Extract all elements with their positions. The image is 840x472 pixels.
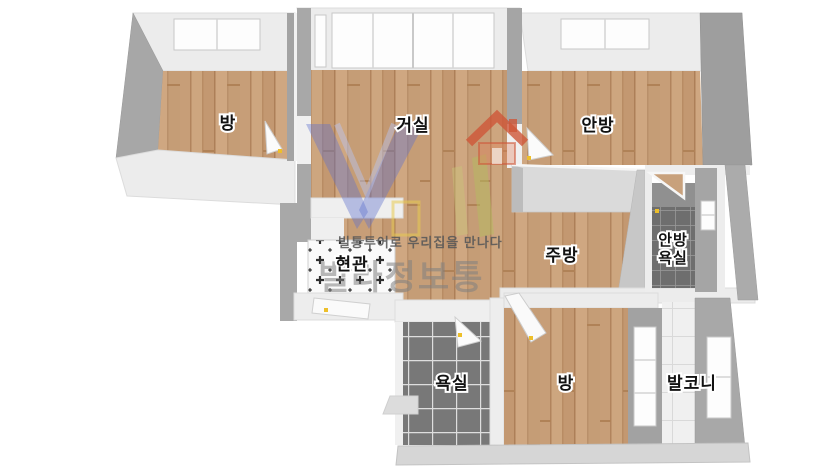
left-wall — [645, 168, 652, 293]
upper-wall-slab-side — [512, 165, 523, 212]
label-balcony: 발코니 — [667, 374, 717, 393]
window — [315, 13, 494, 68]
door-hinge-dot — [529, 336, 533, 340]
bottom-wall — [116, 150, 295, 205]
door-hinge-dot — [324, 308, 328, 312]
door-hinge-dot — [655, 209, 659, 213]
divider-wall — [490, 298, 504, 447]
bottom-outer-wall — [396, 443, 750, 465]
door-hinge-dot — [527, 156, 531, 160]
label-entrance: 현관 — [335, 255, 368, 274]
upper-wall-slab — [512, 165, 645, 212]
room-bathroom — [383, 298, 505, 447]
wall-gap — [717, 168, 725, 290]
door-hinge-dot — [458, 333, 462, 337]
door-hinge-dot — [278, 149, 282, 153]
label-living-room: 거실 — [396, 116, 429, 135]
watermark-slogan: 빌통투어로 우리집을 만나다 — [338, 235, 503, 250]
window — [174, 19, 260, 50]
label-bathroom: 욕실 — [435, 374, 468, 393]
window — [561, 19, 649, 49]
label-master-bedroom: 안방 — [581, 116, 614, 135]
wall-gap — [294, 13, 297, 161]
door-opening — [297, 116, 311, 164]
label-bedroom-top-left: 방 — [220, 114, 237, 133]
floorplan-image: 빌통투어로 우리집을 만나다 빌라정보통 방 거실 안방 현관 주방 안방 욕실… — [0, 0, 840, 472]
label-kitchen: 주방 — [545, 246, 578, 265]
window — [701, 201, 715, 230]
room-bedroom-top-left — [116, 13, 297, 205]
window — [634, 327, 656, 426]
label-bedroom-bottom: 방 — [558, 374, 575, 393]
room-master-bedroom — [507, 8, 752, 168]
left-wall — [395, 322, 403, 445]
label-master-bathroom-line1: 안방 — [658, 231, 688, 249]
top-wall — [395, 300, 505, 322]
room-bedroom-bottom — [504, 293, 662, 447]
label-master-bathroom-line2: 욕실 — [658, 250, 688, 267]
right-wall — [287, 13, 294, 161]
floorplan-svg: 빌통투어로 우리집을 만나다 빌라정보통 방 거실 안방 현관 주방 안방 욕실… — [0, 0, 840, 472]
